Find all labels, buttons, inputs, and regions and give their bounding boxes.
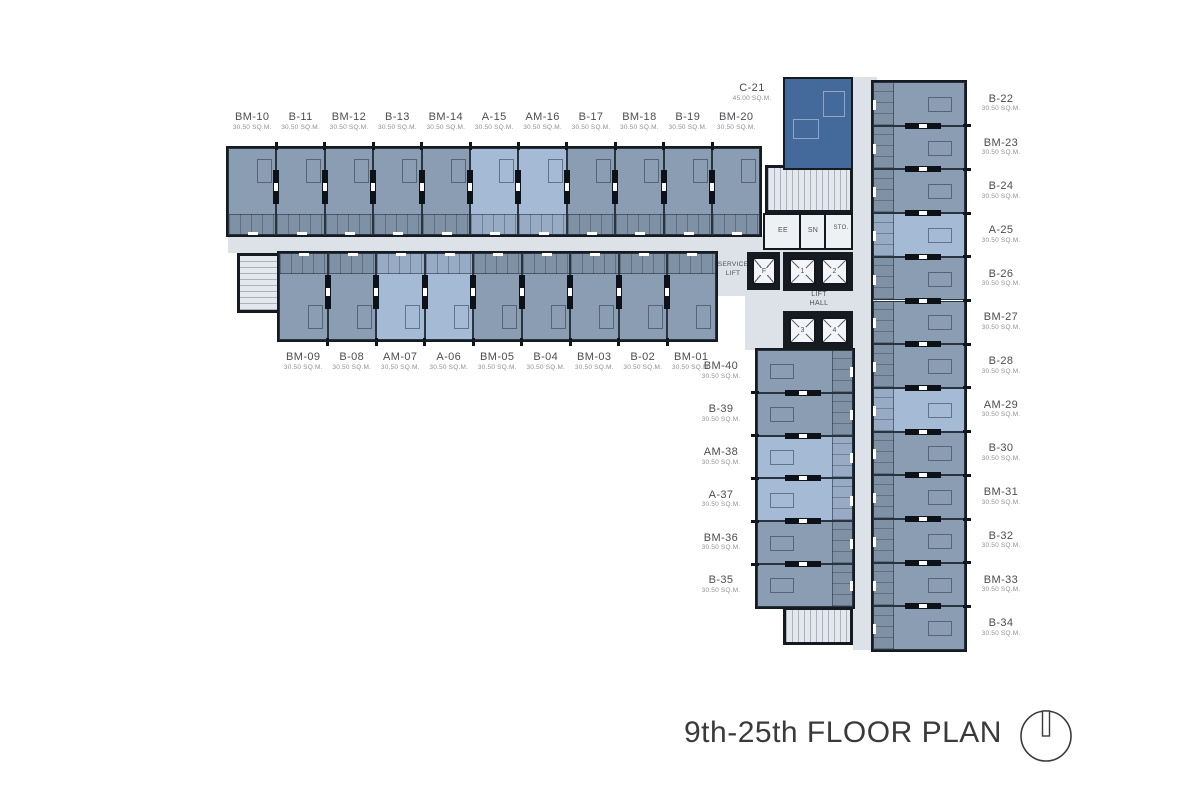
unit-area: 30.50 SQ.M. <box>961 105 1041 113</box>
entrance-door <box>542 253 552 256</box>
stairwell <box>237 253 280 313</box>
unit-name: C-21 <box>712 82 792 95</box>
party-wall <box>785 390 821 396</box>
unit-label: B-3430.50 SQ.M. <box>961 617 1041 638</box>
door-gap <box>516 183 520 191</box>
unit-name: BM-33 <box>961 574 1041 587</box>
unit-label: C-2145.00 SQ.M. <box>712 82 792 103</box>
furniture-outline <box>502 305 517 329</box>
unit-name: BM-01 <box>651 351 731 364</box>
balcony-tick <box>963 299 971 302</box>
entrance-door <box>493 253 503 256</box>
furniture-outline <box>308 305 323 329</box>
unit-name: BM-05 <box>457 351 537 364</box>
entrance-door <box>393 232 403 235</box>
balcony-tick <box>472 338 475 346</box>
unit-block <box>873 301 965 345</box>
unit-name: B-39 <box>681 403 761 416</box>
unit-block <box>873 606 965 650</box>
bathroom-zone <box>832 565 852 606</box>
entrance-door <box>850 539 853 549</box>
unit-label: BM-0530.50 SQ.M. <box>457 351 537 372</box>
unit-block <box>567 148 615 235</box>
entrance-door <box>732 232 742 235</box>
unit-label: B-2830.50 SQ.M. <box>961 355 1041 376</box>
unit-block <box>873 563 965 607</box>
unit-name: BM-09 <box>263 351 343 364</box>
unit-block <box>279 253 328 340</box>
bathroom-zone <box>471 214 517 234</box>
party-wall <box>373 275 379 309</box>
unit-area: 30.50 SQ.M. <box>551 124 631 132</box>
balcony-tick <box>662 142 665 150</box>
unit-name: B-08 <box>312 351 392 364</box>
unit-area: 30.50 SQ.M. <box>603 364 683 372</box>
balcony-tick <box>614 142 617 150</box>
stairwell <box>783 607 853 645</box>
unit-name: BM-12 <box>309 111 389 124</box>
unit-name: B-35 <box>681 574 761 587</box>
balcony-tick <box>375 338 378 346</box>
unit-area: 30.50 SQ.M. <box>261 124 341 132</box>
door-gap <box>468 183 472 191</box>
furniture-outline <box>257 159 272 183</box>
unit-name: B-02 <box>603 351 683 364</box>
unit-label: B-1930.50 SQ.M. <box>648 111 728 132</box>
furniture-outline <box>928 490 952 505</box>
unit-name: B-26 <box>961 268 1041 281</box>
door-gap <box>420 183 424 191</box>
bathroom-zone <box>874 258 894 300</box>
unit-label: A-2530.50 SQ.M. <box>961 224 1041 245</box>
lift-number: 1 <box>799 268 807 275</box>
unit-block <box>873 475 965 519</box>
entrance-door <box>345 232 355 235</box>
unit-label: B-0830.50 SQ.M. <box>312 351 392 372</box>
bathroom-zone <box>474 254 521 274</box>
balcony-tick <box>420 142 423 150</box>
door-gap <box>919 167 927 171</box>
unit-block <box>522 253 571 340</box>
unit-area: 30.50 SQ.M. <box>696 124 776 132</box>
party-wall <box>785 475 821 481</box>
bathroom-zone <box>665 214 711 234</box>
door-gap <box>374 288 378 296</box>
door-gap <box>568 288 572 296</box>
entrance-door <box>873 362 876 372</box>
entrance-door <box>684 232 694 235</box>
north-indicator-icon <box>1018 708 1074 764</box>
door-gap <box>919 561 927 565</box>
unit-area: 30.50 SQ.M. <box>357 124 437 132</box>
party-wall <box>905 603 941 609</box>
unit-label: BM-1230.50 SQ.M. <box>309 111 389 132</box>
lift-number: F <box>760 268 768 275</box>
entrance-door <box>539 232 549 235</box>
furniture-outline <box>357 305 372 329</box>
unit-name: AM-29 <box>961 399 1041 412</box>
door-gap <box>617 288 621 296</box>
unit-name: BM-20 <box>696 111 776 124</box>
unit-area: 30.50 SQ.M. <box>454 124 534 132</box>
entrance-door <box>445 253 455 256</box>
unit-area: 30.50 SQ.M. <box>651 364 731 372</box>
unit-area: 30.50 SQ.M. <box>961 237 1041 245</box>
party-wall <box>905 166 941 172</box>
lift-number: 2 <box>831 268 839 275</box>
party-wall <box>905 298 941 304</box>
party-wall <box>905 341 941 347</box>
party-wall <box>905 429 941 435</box>
entrance-door <box>348 253 358 256</box>
unit-area: 30.50 SQ.M. <box>961 630 1041 638</box>
unit-block <box>873 388 965 432</box>
unit-label: BM-4030.50 SQ.M. <box>681 360 761 381</box>
door-gap <box>919 604 927 608</box>
unit-name: BM-14 <box>406 111 486 124</box>
party-wall <box>422 275 428 309</box>
door-gap <box>799 434 807 438</box>
party-wall <box>273 170 279 204</box>
party-wall <box>905 210 941 216</box>
furniture-outline <box>928 184 952 199</box>
entrance-door <box>299 253 309 256</box>
unit-area: 30.50 SQ.M. <box>961 455 1041 463</box>
bathroom-zone <box>874 345 894 387</box>
furniture-outline <box>928 578 952 593</box>
unit-area: 30.50 SQ.M. <box>506 364 586 372</box>
entrance-door <box>635 232 645 235</box>
balcony-tick <box>751 520 759 523</box>
party-wall <box>515 170 521 204</box>
bathroom-zone <box>568 214 614 234</box>
balcony-tick <box>323 142 326 150</box>
party-wall <box>905 123 941 129</box>
bathroom-zone <box>713 214 759 234</box>
party-wall <box>467 170 473 204</box>
furniture-outline <box>928 272 952 287</box>
unit-area: 30.50 SQ.M. <box>961 149 1041 157</box>
door-gap <box>799 391 807 395</box>
balcony-tick <box>751 391 759 394</box>
door-gap <box>471 288 475 296</box>
bathroom-zone <box>832 522 852 563</box>
unit-label: B-1330.50 SQ.M. <box>357 111 437 132</box>
balcony-tick <box>963 518 971 521</box>
door-gap <box>919 430 927 434</box>
unit-name: B-30 <box>961 442 1041 455</box>
party-wall <box>785 561 821 567</box>
unit-block <box>757 393 853 436</box>
door-gap <box>423 288 427 296</box>
balcony-tick <box>963 605 971 608</box>
door-gap <box>799 562 807 566</box>
stairwell <box>765 165 853 213</box>
balcony-tick <box>751 477 759 480</box>
furniture-outline <box>770 450 794 465</box>
unit-area: 30.50 SQ.M. <box>409 364 489 372</box>
door-gap <box>919 255 927 259</box>
unit-label: BM-3330.50 SQ.M. <box>961 574 1041 595</box>
entrance-door <box>687 253 697 256</box>
bathroom-zone <box>874 520 894 562</box>
entrance-door <box>850 496 853 506</box>
unit-name: B-11 <box>261 111 341 124</box>
furniture-outline <box>928 97 952 112</box>
door-gap <box>799 476 807 480</box>
entrance-door <box>248 232 258 235</box>
unit-name: A-06 <box>409 351 489 364</box>
bathroom-zone <box>523 254 570 274</box>
unit-name: A-37 <box>681 489 761 502</box>
furniture-outline <box>551 305 566 329</box>
entrance-door <box>873 624 876 634</box>
bathroom-zone <box>832 394 852 435</box>
unit-name: B-34 <box>961 617 1041 630</box>
bathroom-zone <box>374 214 420 234</box>
unit-name: B-19 <box>648 111 728 124</box>
unit-block <box>873 169 965 213</box>
balcony-tick <box>617 338 620 346</box>
balcony-tick <box>711 142 714 150</box>
furniture-outline <box>599 305 614 329</box>
unit-name: B-17 <box>551 111 631 124</box>
entrance-door <box>873 581 876 591</box>
unit-block <box>664 148 712 235</box>
door-gap <box>919 473 927 477</box>
lift-car-1: 1 <box>789 258 816 285</box>
bathroom-zone <box>326 214 372 234</box>
unit-name: BM-10 <box>212 111 292 124</box>
unit-area: 30.50 SQ.M. <box>681 459 761 467</box>
door-gap <box>919 342 927 346</box>
entrance-door <box>587 232 597 235</box>
party-wall <box>612 170 618 204</box>
unit-block <box>873 126 965 170</box>
furniture-outline <box>770 407 794 422</box>
door-gap <box>520 288 524 296</box>
unit-name: AM-38 <box>681 446 761 459</box>
bathroom-zone <box>874 476 894 518</box>
unit-name: B-28 <box>961 355 1041 368</box>
unit-block <box>757 564 853 607</box>
balcony-tick <box>569 338 572 346</box>
entrance-door <box>873 275 876 285</box>
party-wall <box>709 170 715 204</box>
unit-label: AM-0730.50 SQ.M. <box>360 351 440 372</box>
balcony-tick <box>751 563 759 566</box>
unit-label: B-3230.50 SQ.M. <box>961 530 1041 551</box>
unit-block <box>873 432 965 476</box>
unit-area: 30.50 SQ.M. <box>961 280 1041 288</box>
party-wall <box>370 170 376 204</box>
unit-label: AM-2930.50 SQ.M. <box>961 399 1041 420</box>
door-gap <box>799 519 807 523</box>
unit-label: B-1130.50 SQ.M. <box>261 111 341 132</box>
balcony-tick <box>275 142 278 150</box>
balcony-tick <box>963 212 971 215</box>
unit-block <box>873 344 965 388</box>
unit-area: 30.50 SQ.M. <box>961 324 1041 332</box>
unit-label: BM-1430.50 SQ.M. <box>406 111 486 132</box>
entrance-door <box>442 232 452 235</box>
balcony-tick <box>517 142 520 150</box>
party-wall <box>470 275 476 309</box>
unit-name: BM-23 <box>961 137 1041 150</box>
furniture-outline <box>648 305 663 329</box>
balcony-tick <box>963 386 971 389</box>
party-wall <box>785 518 821 524</box>
door-gap <box>274 183 278 191</box>
entrance-door <box>850 453 853 463</box>
unit-block <box>376 253 425 340</box>
lift-car-F: F <box>752 257 776 285</box>
title-block: 9th-25th FLOOR PLAN <box>684 716 1014 750</box>
entrance-door <box>297 232 307 235</box>
entrance-door <box>639 253 649 256</box>
bathroom-zone <box>377 254 424 274</box>
unit-name: B-22 <box>961 93 1041 106</box>
unit-block <box>570 253 619 340</box>
bathroom-zone <box>668 254 715 274</box>
unit-area: 30.50 SQ.M. <box>961 368 1041 376</box>
bathroom-zone <box>229 214 275 234</box>
unit-name: AM-07 <box>360 351 440 364</box>
bathroom-zone <box>277 214 323 234</box>
unit-name: B-32 <box>961 530 1041 543</box>
lift-number: 3 <box>799 327 807 334</box>
unit-name: B-04 <box>506 351 586 364</box>
door-gap <box>323 183 327 191</box>
door-gap <box>613 183 617 191</box>
party-wall <box>905 254 941 260</box>
unit-block <box>757 478 853 521</box>
unit-block <box>757 521 853 564</box>
furniture-outline <box>770 493 794 508</box>
unit-name: BM-31 <box>961 486 1041 499</box>
furniture-outline <box>354 159 369 183</box>
unit-name: BM-36 <box>681 532 761 545</box>
unit-area: 30.50 SQ.M. <box>312 364 392 372</box>
balcony-tick <box>963 124 971 127</box>
bathroom-zone <box>423 214 469 234</box>
door-gap <box>919 124 927 128</box>
furniture-outline <box>928 534 952 549</box>
unit-label: BM-1030.50 SQ.M. <box>212 111 292 132</box>
door-gap <box>919 386 927 390</box>
unit-area: 30.50 SQ.M. <box>681 416 761 424</box>
unit-label: B-1730.50 SQ.M. <box>551 111 631 132</box>
unit-area: 30.50 SQ.M. <box>212 124 292 132</box>
door-gap <box>326 288 330 296</box>
bathroom-zone <box>874 214 894 256</box>
unit-area: 30.50 SQ.M. <box>681 373 761 381</box>
bathroom-zone <box>874 607 894 649</box>
bathroom-zone <box>874 302 894 344</box>
unit-label: B-3930.50 SQ.M. <box>681 403 761 424</box>
unit-block <box>873 213 965 257</box>
unit-label: AM-1630.50 SQ.M. <box>503 111 583 132</box>
furniture-outline <box>693 159 708 183</box>
party-wall <box>905 516 941 522</box>
unit-label: B-2630.50 SQ.M. <box>961 268 1041 289</box>
furniture-outline <box>928 141 952 156</box>
unit-name: AM-16 <box>503 111 583 124</box>
unit-label: B-0430.50 SQ.M. <box>506 351 586 372</box>
balcony-tick <box>666 338 669 346</box>
unit-block <box>276 148 324 235</box>
balcony-tick <box>326 338 329 346</box>
entrance-door <box>873 100 876 110</box>
party-wall <box>905 560 941 566</box>
entrance-door <box>873 493 876 503</box>
unit-block <box>873 257 965 301</box>
balcony-tick <box>520 338 523 346</box>
bathroom-zone <box>874 433 894 475</box>
entrance-door <box>850 367 853 377</box>
wall-divider <box>824 215 826 248</box>
furniture-outline <box>770 364 794 379</box>
unit-label: BM-3130.50 SQ.M. <box>961 486 1041 507</box>
balcony-tick <box>963 561 971 564</box>
furniture-outline <box>596 159 611 183</box>
party-wall <box>905 385 941 391</box>
bathroom-zone <box>620 254 667 274</box>
unit-label: BM-1830.50 SQ.M. <box>599 111 679 132</box>
party-wall <box>519 275 525 309</box>
door-gap <box>665 288 669 296</box>
corridor <box>716 252 750 296</box>
entrance-door <box>873 144 876 154</box>
unit-name: A-15 <box>454 111 534 124</box>
unit-block <box>873 82 965 126</box>
unit-block <box>615 148 663 235</box>
bathroom-zone <box>426 254 473 274</box>
bathroom-zone <box>280 254 327 274</box>
door-gap <box>919 299 927 303</box>
door-gap <box>371 183 375 191</box>
unit-area: 30.50 SQ.M. <box>961 542 1041 550</box>
entrance-door <box>873 187 876 197</box>
party-wall <box>567 275 573 309</box>
furniture-outline <box>451 159 466 183</box>
unit-block <box>757 350 853 393</box>
unit-area: 30.50 SQ.M. <box>681 544 761 552</box>
unit-block <box>783 77 853 170</box>
furniture-outline <box>928 228 952 243</box>
balcony-tick <box>469 142 472 150</box>
unit-label: B-3530.50 SQ.M. <box>681 574 761 595</box>
unit-label: A-3730.50 SQ.M. <box>681 489 761 510</box>
wall-divider <box>799 215 801 248</box>
furniture-outline <box>928 446 952 461</box>
utility-rooms <box>763 213 853 250</box>
unit-area: 30.50 SQ.M. <box>681 501 761 509</box>
bathroom-zone <box>616 214 662 234</box>
unit-area: 45.00 SQ.M. <box>712 95 792 103</box>
party-wall <box>322 170 328 204</box>
entrance-door <box>873 318 876 328</box>
lift-car-4: 4 <box>821 317 848 344</box>
entrance-door <box>873 449 876 459</box>
balcony-tick <box>963 343 971 346</box>
furniture-outline <box>741 159 756 183</box>
furniture-outline <box>696 305 711 329</box>
entrance-door <box>873 231 876 241</box>
unit-area: 30.50 SQ.M. <box>961 499 1041 507</box>
unit-label: BM-0130.50 SQ.M. <box>651 351 731 372</box>
unit-block <box>619 253 668 340</box>
